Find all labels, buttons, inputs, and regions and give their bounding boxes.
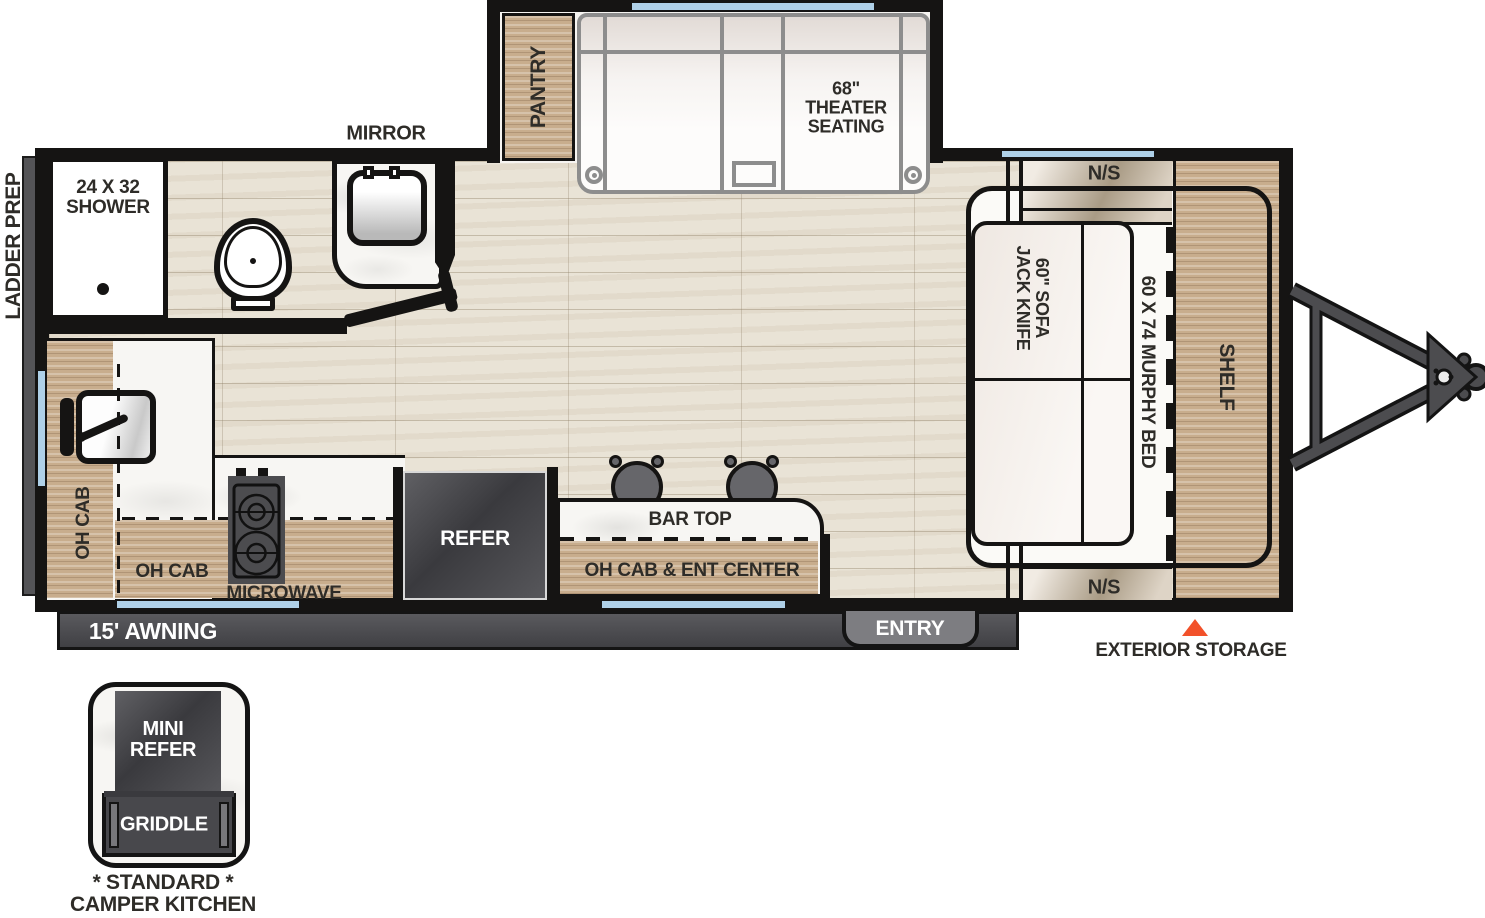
kitchen-window xyxy=(115,599,301,610)
theater-cupholder-right-dot xyxy=(911,173,916,178)
exterior-storage-label: EXTERIOR STORAGE xyxy=(1095,641,1286,661)
oh-cab-left-label: OH CAB xyxy=(74,486,94,559)
slideout-window xyxy=(630,1,876,12)
griddle-handle-left xyxy=(109,802,119,848)
bedroom-window xyxy=(1000,149,1156,159)
oh-cab-dashed-left xyxy=(117,364,120,600)
ent-center-label: OH CAB & ENT CENTER xyxy=(585,561,800,581)
mirror-label: MIRROR xyxy=(346,124,425,145)
theater-console-line-right xyxy=(781,17,785,190)
oh-cab-bottom-label: OH CAB xyxy=(135,562,208,582)
kitchen-sink-icon xyxy=(76,390,156,464)
ns-front-label: N/S xyxy=(1088,164,1120,185)
camper-kitchen-caption: * STANDARD * CAMPER KITCHEN xyxy=(70,872,256,916)
entry-label: ENTRY xyxy=(876,618,945,640)
camper-kitchen-inset xyxy=(88,682,250,868)
griddle-lip xyxy=(104,791,234,797)
bathroom-wall-bottom xyxy=(35,318,347,334)
toilet-icon xyxy=(214,218,292,312)
kitchen-faucet-icon xyxy=(60,398,74,456)
ns-rear-label: N/S xyxy=(1088,578,1120,599)
griddle-handle-right xyxy=(219,802,229,848)
shower-label: 24 X 32 SHOWER xyxy=(66,178,150,218)
rear-wall-window xyxy=(36,369,47,488)
theater-backrest-line xyxy=(581,50,926,54)
bar-dashed-line xyxy=(560,537,816,541)
faucet-notch-left xyxy=(363,166,374,179)
theater-armrest-line-left xyxy=(603,17,607,190)
trailer-tongue-icon xyxy=(1292,272,1485,482)
pantry-label: PANTRY xyxy=(528,46,550,128)
theater-seating-label: 68" THEATER SEATING xyxy=(805,80,887,137)
bar-wall-stub xyxy=(820,534,830,600)
ent-center-window xyxy=(600,599,787,610)
shower-drain-icon xyxy=(97,283,109,295)
theater-armrest-line-right xyxy=(899,17,903,190)
vanity xyxy=(332,159,444,289)
mini-refer-label: MINI REFER xyxy=(130,719,196,761)
vanity-sink-icon xyxy=(347,170,427,246)
floorplan-canvas: LADDER PREP PANTRY 68" THEATER SEATING M… xyxy=(0,0,1485,918)
murphy-bed-outline xyxy=(966,186,1272,568)
exterior-storage-marker-icon xyxy=(1182,619,1208,636)
faucet-notch-right xyxy=(389,166,400,179)
bathroom-wall-stub xyxy=(435,159,455,279)
cooktop-icon xyxy=(228,476,285,584)
bar-top-label: BAR TOP xyxy=(648,510,731,530)
ladder-prep-label: LADDER PREP xyxy=(3,172,25,319)
awning-label: 15' AWNING xyxy=(89,619,217,643)
theater-console-tray xyxy=(732,161,776,187)
refer-label: REFER xyxy=(440,528,510,550)
kitchen-faucet-base-dot xyxy=(76,432,86,442)
griddle-label: GRIDDLE xyxy=(120,815,208,836)
theater-console-line-left xyxy=(720,17,724,190)
theater-cupholder-left-dot xyxy=(592,173,597,178)
refer-wall-left xyxy=(393,467,403,600)
